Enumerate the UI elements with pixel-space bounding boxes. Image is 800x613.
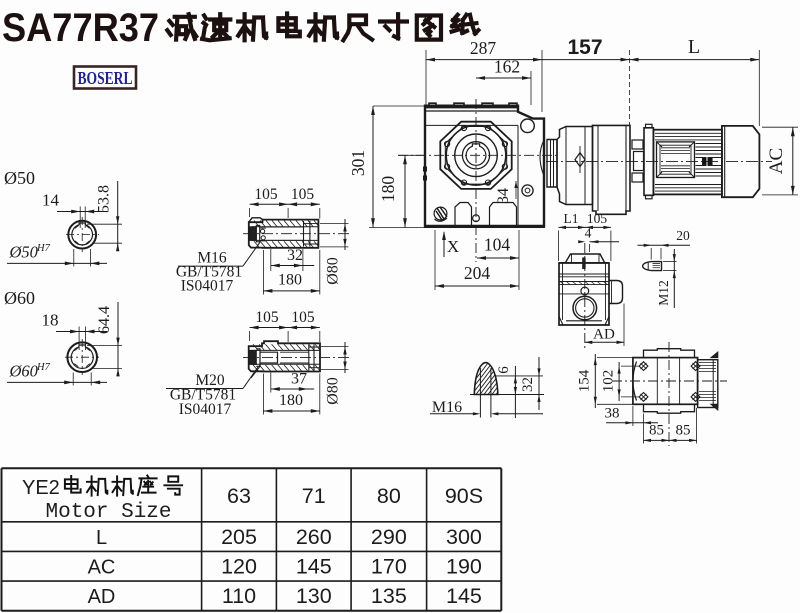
svg-text:64.4: 64.4 — [96, 306, 113, 334]
svg-text:80: 80 — [377, 484, 401, 508]
svg-text:180: 180 — [278, 271, 302, 288]
svg-text:205: 205 — [221, 525, 257, 549]
svg-text:H7: H7 — [36, 243, 51, 254]
svg-text:204: 204 — [464, 263, 491, 283]
svg-text:102: 102 — [601, 370, 617, 393]
svg-text:Ø60: Ø60 — [9, 362, 39, 381]
svg-text:4: 4 — [585, 225, 592, 240]
svg-text:AC: AC — [766, 148, 787, 174]
svg-text:110: 110 — [222, 584, 256, 608]
svg-text:L: L — [688, 36, 700, 58]
svg-text:BOSERL: BOSERL — [78, 68, 133, 88]
svg-text:260: 260 — [296, 525, 332, 549]
svg-text:AD: AD — [88, 586, 116, 608]
svg-text:145: 145 — [446, 584, 482, 608]
svg-text:32: 32 — [287, 247, 303, 264]
svg-text:154: 154 — [577, 369, 593, 392]
svg-text:135: 135 — [371, 584, 407, 608]
svg-text:YE2: YE2 — [22, 477, 60, 499]
svg-text:170: 170 — [371, 555, 407, 579]
svg-text:Ø60: Ø60 — [4, 288, 35, 308]
svg-text:180: 180 — [378, 176, 398, 203]
svg-text:AD: AD — [593, 326, 615, 342]
svg-text:85: 85 — [649, 423, 664, 439]
svg-text:IS04017: IS04017 — [179, 401, 232, 418]
svg-text:X: X — [447, 237, 459, 256]
svg-text:H7: H7 — [36, 362, 51, 373]
svg-text:L1: L1 — [564, 211, 579, 226]
svg-text:M12: M12 — [656, 280, 671, 306]
svg-text:Ø80: Ø80 — [325, 377, 342, 405]
svg-text:Ø80: Ø80 — [325, 257, 342, 285]
svg-text:190: 190 — [446, 555, 482, 579]
svg-text:105: 105 — [254, 186, 278, 203]
svg-text:120: 120 — [221, 555, 257, 579]
svg-text:145: 145 — [296, 555, 332, 579]
svg-text:32: 32 — [520, 377, 536, 392]
svg-text:L: L — [96, 527, 107, 549]
svg-text:130: 130 — [296, 584, 332, 608]
svg-text:SA77R37: SA77R37 — [2, 6, 159, 50]
svg-text:85: 85 — [676, 423, 691, 439]
svg-text:301: 301 — [348, 150, 368, 176]
svg-text:290: 290 — [371, 525, 407, 549]
svg-text:Motor Size: Motor Size — [45, 501, 171, 524]
svg-text:20: 20 — [676, 228, 690, 243]
svg-text:AC: AC — [88, 557, 116, 579]
svg-text:287: 287 — [470, 38, 497, 58]
svg-text:300: 300 — [446, 525, 482, 549]
svg-text:63: 63 — [227, 484, 251, 508]
svg-text:180: 180 — [279, 392, 303, 409]
svg-text:162: 162 — [494, 57, 520, 77]
svg-text:Ø50: Ø50 — [4, 168, 35, 188]
svg-text:105: 105 — [291, 309, 315, 326]
svg-text:18: 18 — [42, 311, 59, 330]
svg-text:104: 104 — [484, 235, 511, 255]
svg-text:14: 14 — [42, 191, 60, 210]
svg-text:34: 34 — [495, 188, 512, 204]
svg-text:IS04017: IS04017 — [181, 278, 234, 295]
svg-text:157: 157 — [567, 36, 602, 59]
svg-text:105: 105 — [291, 186, 315, 203]
svg-text:105: 105 — [587, 211, 608, 226]
svg-text:6: 6 — [496, 366, 512, 374]
svg-text:Ø50: Ø50 — [9, 243, 39, 262]
svg-text:53.8: 53.8 — [96, 185, 113, 213]
svg-text:37: 37 — [291, 370, 307, 387]
svg-text:71: 71 — [302, 484, 326, 508]
svg-text:90S: 90S — [445, 484, 483, 508]
svg-text:105: 105 — [255, 309, 279, 326]
svg-text:38: 38 — [605, 406, 620, 422]
